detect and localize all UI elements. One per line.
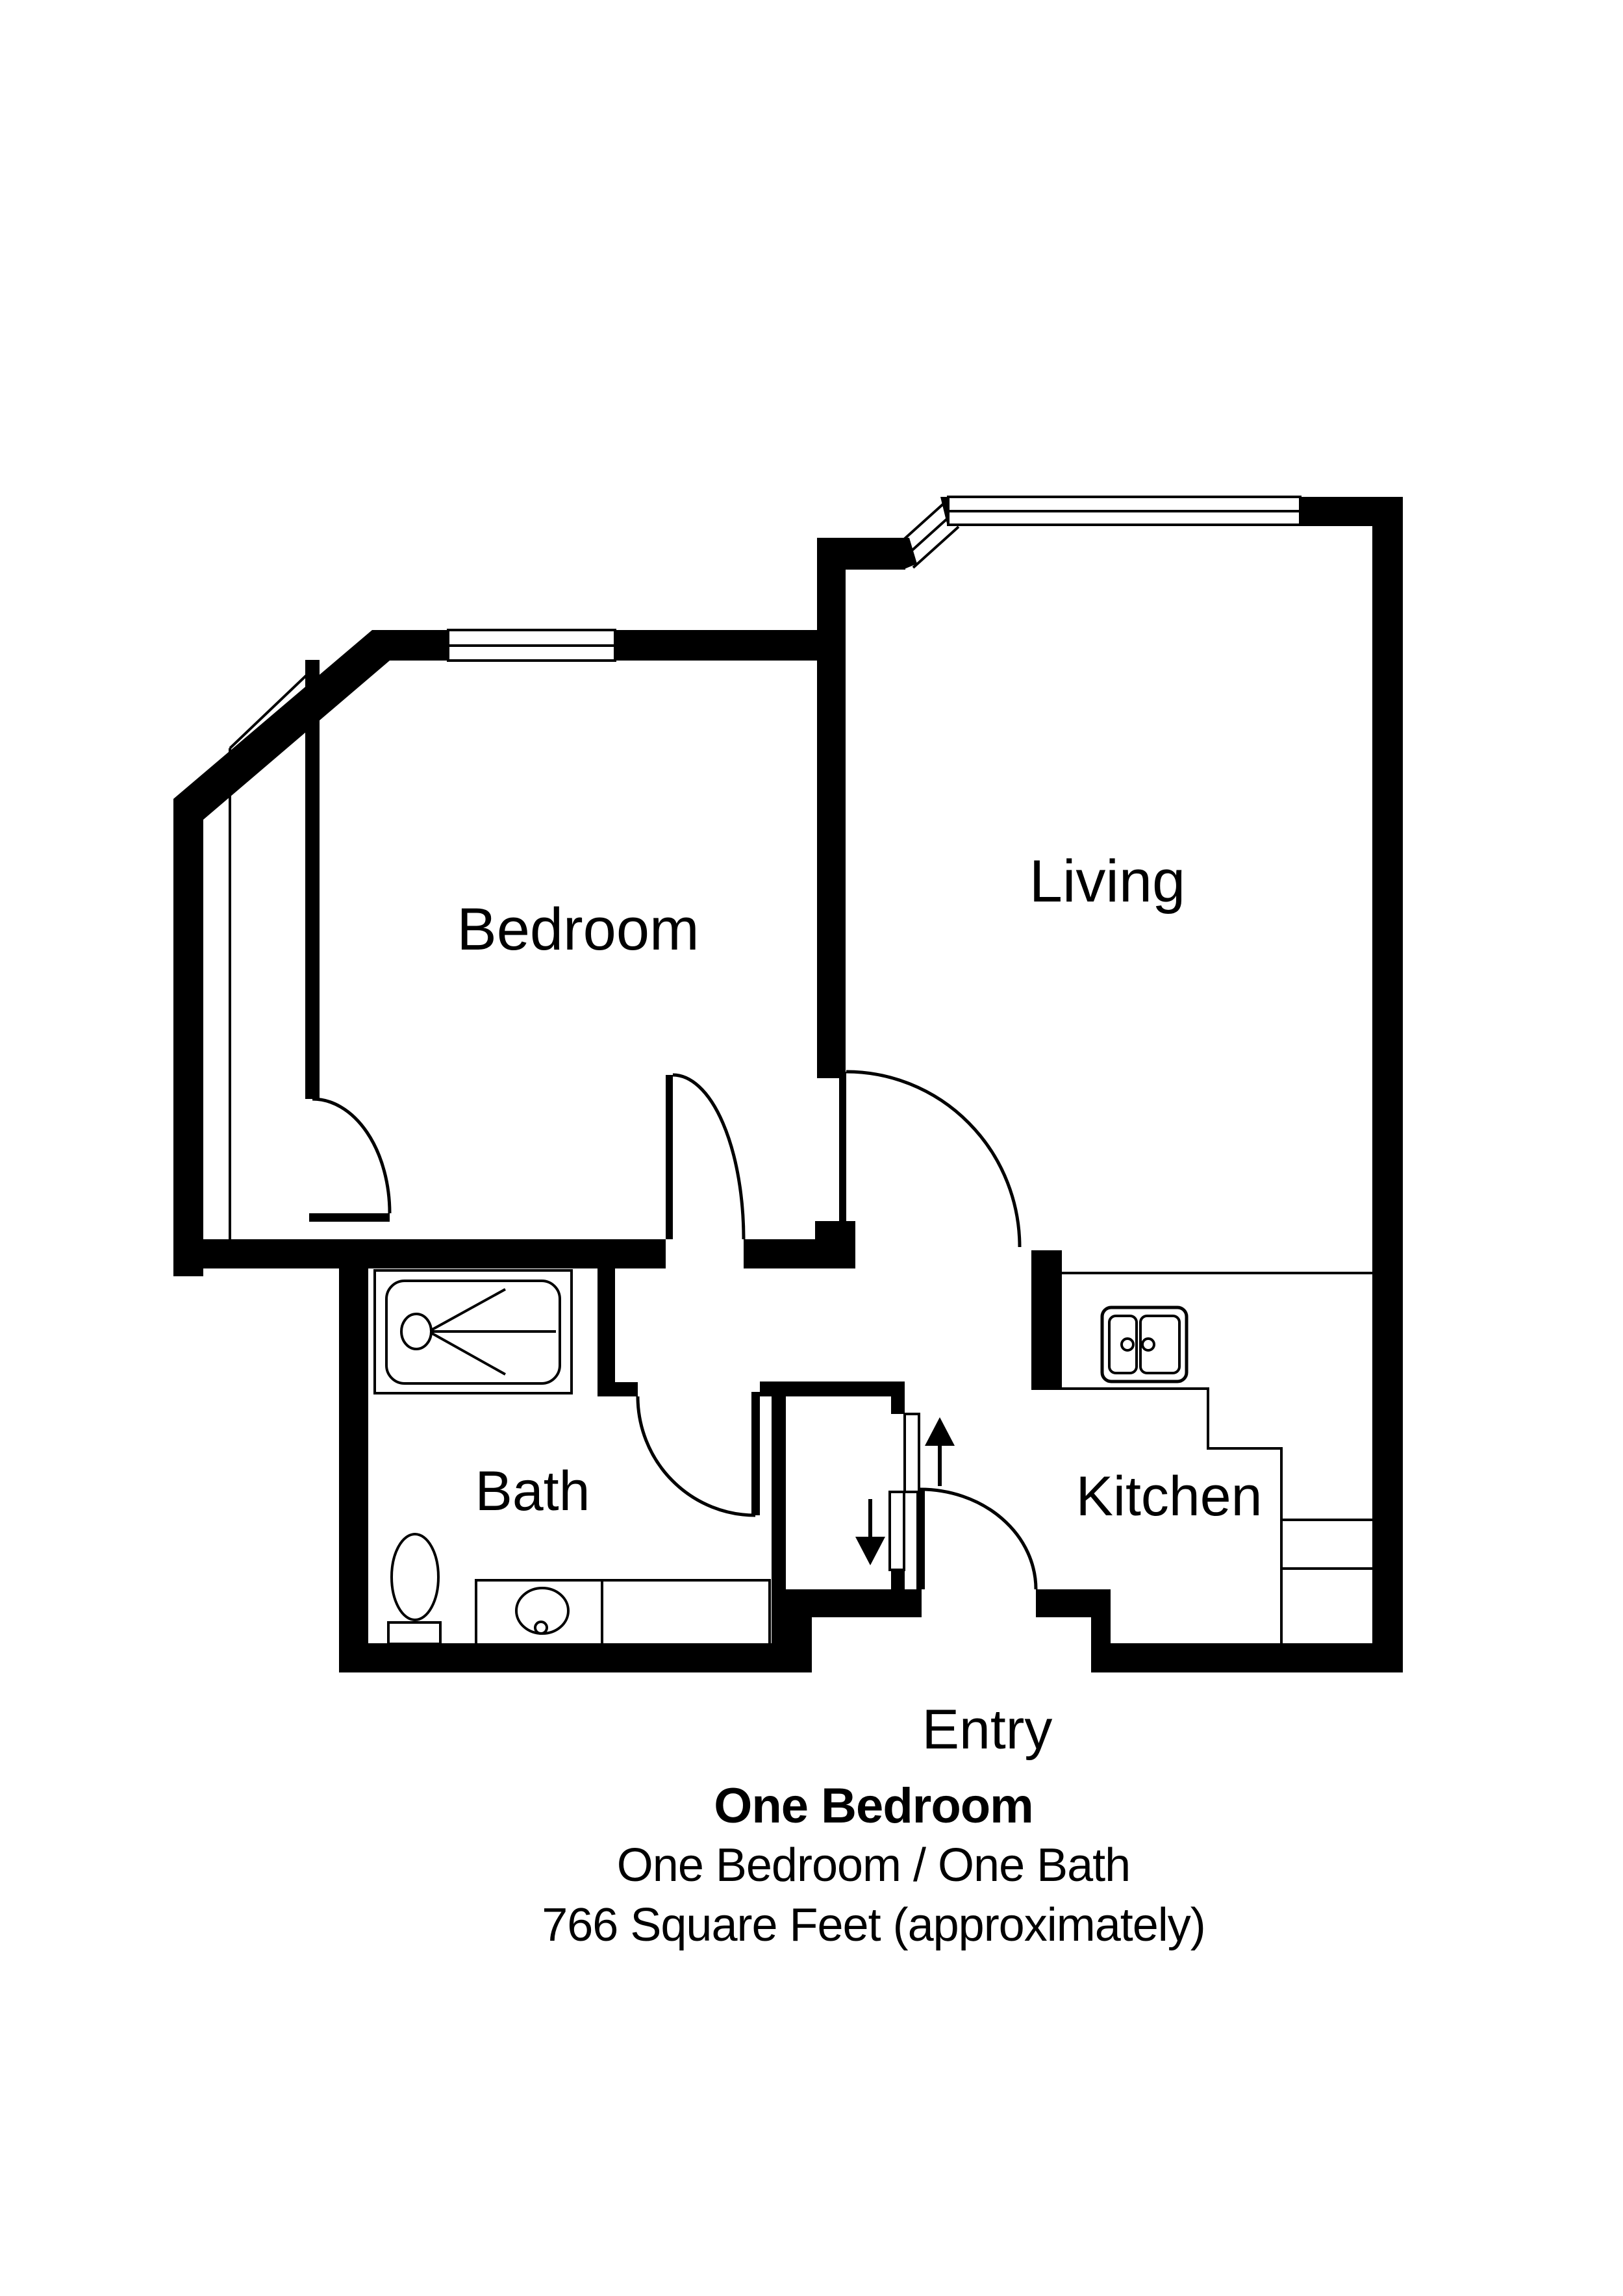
caption-title: One Bedroom [714,1778,1033,1834]
bedroom-label: Bedroom [457,896,699,963]
kitchen-bottom-wall [1091,1643,1403,1672]
sliding-panel-outer [905,1414,919,1492]
closet-left-wall [772,1381,786,1589]
entry-label: Entry [922,1698,1053,1761]
closet-right-wall-top [891,1381,905,1414]
living-door-stub [815,1221,855,1268]
caption-area: 766 Square Feet (approximately) [542,1899,1205,1951]
kitchen-stub-wall [1031,1250,1062,1390]
toilet-tank [388,1622,440,1644]
bath-bottom-wall [339,1643,812,1672]
living-door-leaf [839,1072,846,1239]
living-label: Living [1029,848,1185,915]
bedroom-living-divider-wall [817,650,846,1078]
left-outer-wall [173,799,203,1276]
bedroom-top-wall-right [612,630,846,661]
bedroom-window [448,630,615,661]
bath-door-leaf [751,1392,760,1515]
bath-label: Bath [475,1460,590,1522]
caption-subtitle: One Bedroom / One Bath [617,1839,1130,1891]
sliding-panel-inner [890,1492,904,1570]
kitchen-label: Kitchen [1076,1465,1263,1528]
living-topleft-wall [817,538,905,570]
closet-right-wall-bottom [891,1569,905,1589]
shower-right-wall [598,1263,615,1389]
bath-left-wall [339,1247,368,1672]
bath-door-jamb [598,1382,638,1396]
toilet-symbol [388,1534,440,1644]
hall-top-wall-left [173,1239,666,1268]
bedroom-door-leaf [666,1075,673,1239]
shower-head [401,1314,431,1349]
living-top-window [948,497,1300,525]
entry-door-leaf [916,1489,925,1589]
closet-partition-wall [305,660,320,1099]
floor-plan-drawing: Bedroom Living Bath Kitchen Entry One Be… [0,0,1623,2296]
right-outer-wall [1372,497,1403,1672]
hall-top-wall-mid [744,1239,815,1268]
toilet-bowl [392,1534,438,1620]
closet-door-leaf [309,1213,390,1222]
floor-plan-sheet: Bedroom Living Bath Kitchen Entry One Be… [0,0,1623,2296]
